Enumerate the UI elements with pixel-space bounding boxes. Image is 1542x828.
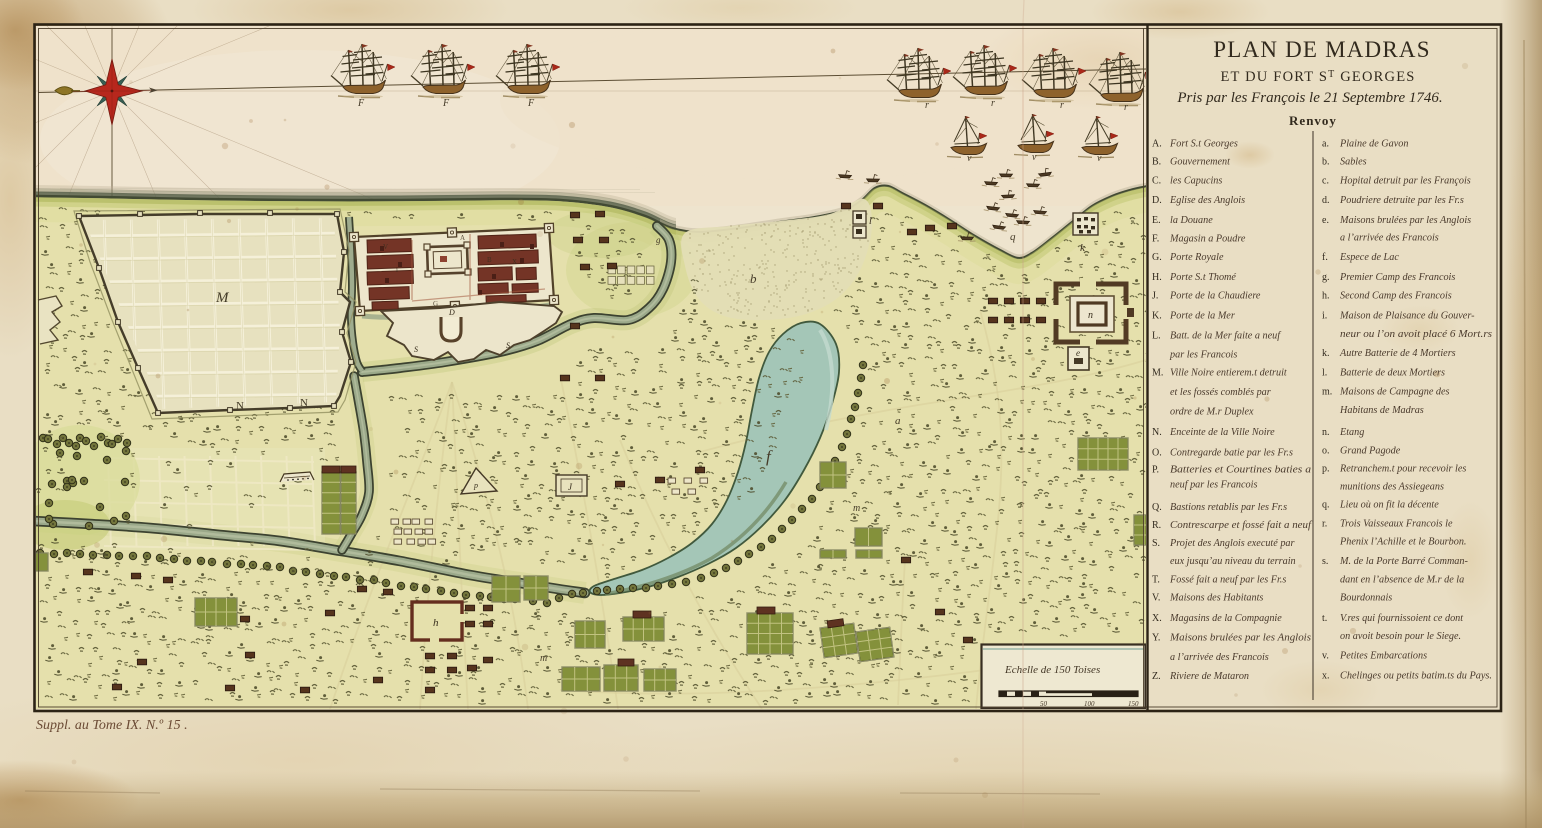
svg-text:a l’arrivée des Francois: a l’arrivée des Francois [1170,652,1269,663]
svg-text:O.: O. [1152,448,1162,459]
svg-text:Porte S.t Thomé: Porte S.t Thomé [1169,272,1236,283]
svg-text:Magasin a Poudre: Magasin a Poudre [1169,234,1246,245]
svg-text:M.: M. [1152,367,1163,378]
svg-text:Pris par les François le 21 Se: Pris par les François le 21 Septembre 17… [1176,90,1442,106]
svg-text:Batterie de deux Mortiers: Batterie de deux Mortiers [1340,367,1445,378]
svg-text:Espece de Lac: Espece de Lac [1339,252,1399,263]
svg-text:Second Camp des Francois: Second Camp des Francois [1340,291,1452,302]
svg-text:c.: c. [1322,175,1329,186]
svg-text:l.: l. [1322,367,1327,378]
svg-text:K.: K. [1152,311,1162,322]
svg-text:n.: n. [1322,427,1330,438]
svg-text:Porte de la Mer: Porte de la Mer [1169,311,1235,322]
svg-text:Porte de la Chaudiere: Porte de la Chaudiere [1169,291,1261,302]
svg-text:Gouvernement: Gouvernement [1170,157,1231,168]
svg-text:G.: G. [1152,252,1162,263]
svg-text:Fossé fait a neuf par les Fr.s: Fossé fait a neuf par les Fr.s [1169,574,1286,585]
svg-text:m.: m. [1322,386,1332,397]
svg-text:Maisons des Habitants: Maisons des Habitants [1169,592,1263,603]
svg-text:o.: o. [1322,446,1330,457]
svg-text:Petites Embarcations: Petites Embarcations [1339,651,1427,662]
svg-text:k.: k. [1322,348,1330,359]
svg-text:Phenix l’Achille et le Bourbon: Phenix l’Achille et le Bourbon. [1339,537,1466,548]
svg-text:Batteries et Courtines baties: Batteries et Courtines baties a [1170,465,1311,476]
svg-text:Hopital detruit par les Franço: Hopital detruit par les François [1339,175,1471,186]
svg-text:X.: X. [1152,613,1162,624]
svg-text:Retranchem.t pour recevoir les: Retranchem.t pour recevoir les [1339,464,1466,475]
svg-text:v.: v. [1322,651,1329,662]
svg-text:neur ou l’on avoit placé 6 Mor: neur ou l’on avoit placé 6 Mort.rs [1340,329,1492,340]
svg-text:a l’arrivée des Francois: a l’arrivée des Francois [1340,233,1439,244]
svg-text:A.: A. [1152,139,1162,150]
svg-text:R.: R. [1152,520,1161,531]
svg-text:Renvoy: Renvoy [1289,113,1337,128]
svg-text:la Douane: la Douane [1170,215,1213,226]
svg-text:Y.: Y. [1152,633,1160,644]
svg-text:par les Francois: par les Francois [1169,350,1237,361]
svg-text:Porte Royale: Porte Royale [1169,252,1224,263]
svg-text:Z.: Z. [1152,671,1161,682]
svg-text:Suppl. au Tome IX. N.º 15 .: Suppl. au Tome IX. N.º 15 . [36,718,188,733]
svg-text:Fort S.t Georges: Fort S.t Georges [1169,139,1238,150]
svg-text:x.: x. [1322,671,1330,682]
svg-text:D.: D. [1152,195,1162,206]
svg-text:t.: t. [1322,613,1327,624]
svg-text:E.: E. [1152,215,1161,226]
svg-text:Autre Batterie de 4 Mortiers: Autre Batterie de 4 Mortiers [1339,348,1456,359]
svg-text:Etang: Etang [1339,427,1364,438]
svg-text:Trois Vaisseaux Francois le: Trois Vaisseaux Francois le [1340,519,1453,530]
svg-text:Maisons brulées par les Angloi: Maisons brulées par les Anglois [1339,215,1471,226]
svg-text:Premier Camp des Francois: Premier Camp des Francois [1339,272,1455,283]
svg-text:Ville Noire entierem.t detruit: Ville Noire entierem.t detruit [1170,367,1288,378]
svg-text:V.: V. [1152,592,1160,603]
svg-text:Projet des Anglois executé par: Projet des Anglois executé par [1169,538,1295,549]
svg-text:f.: f. [1322,252,1328,263]
svg-text:dant en l’absence de M.r de la: dant en l’absence de M.r de la [1340,574,1464,585]
svg-text:Maisons de Campagne des: Maisons de Campagne des [1339,386,1450,397]
svg-text:et les fossés comblés par: et les fossés comblés par [1170,387,1271,398]
svg-text:munitions des Assiegeans: munitions des Assiegeans [1340,482,1444,493]
svg-text:Plaine de Gavon: Plaine de Gavon [1339,139,1408,150]
svg-text:Enceinte de la Ville Noire: Enceinte de la Ville Noire [1169,427,1275,438]
svg-text:r.: r. [1322,519,1327,530]
svg-text:d.: d. [1322,195,1330,206]
svg-text:Bourdonnais: Bourdonnais [1340,593,1392,604]
svg-text:q.: q. [1322,500,1330,511]
svg-text:Contregarde batie par les Fr.s: Contregarde batie par les Fr.s [1170,448,1293,459]
svg-text:Riviere de Mataron: Riviere de Mataron [1169,671,1249,682]
svg-text:les Capucins: les Capucins [1170,175,1222,186]
svg-text:Q.: Q. [1152,502,1162,513]
svg-text:i.: i. [1322,311,1327,322]
svg-text:Sables: Sables [1340,157,1367,168]
svg-text:Lieu où on fit la décente: Lieu où on fit la décente [1339,500,1439,511]
svg-text:Contrescarpe et fossé fait a n: Contrescarpe et fossé fait a neuf [1170,520,1312,531]
svg-text:ET DU FORT ST GEORGES: ET DU FORT ST GEORGES [1220,69,1415,85]
svg-text:Magasins de la Compagnie: Magasins de la Compagnie [1169,613,1282,624]
svg-text:PLAN DE MADRAS: PLAN DE MADRAS [1213,37,1430,62]
svg-text:neuf par les Francois: neuf par les Francois [1170,480,1257,491]
svg-text:Maisons brulées par les Angloi: Maisons brulées par les Anglois [1169,633,1311,644]
svg-text:M. de la Porte Barré Comman-: M. de la Porte Barré Comman- [1339,556,1468,567]
svg-text:e.: e. [1322,215,1329,226]
svg-text:Poudriere detruite par les Fr.: Poudriere detruite par les Fr.s [1339,195,1464,206]
svg-text:h.: h. [1322,291,1330,302]
svg-text:H.: H. [1152,272,1162,283]
svg-text:Habitans de Madras: Habitans de Madras [1339,405,1424,416]
svg-text:S.: S. [1152,538,1160,549]
svg-text:Bastions retablis par les Fr.s: Bastions retablis par les Fr.s [1170,502,1287,513]
svg-text:V.res qui fournissoient ce don: V.res qui fournissoient ce dont [1340,613,1464,624]
svg-text:N.: N. [1152,427,1162,438]
svg-text:C.: C. [1152,175,1161,186]
svg-text:J.: J. [1152,291,1158,302]
svg-text:g.: g. [1322,272,1330,283]
svg-text:b.: b. [1322,157,1330,168]
svg-text:P.: P. [1152,465,1159,476]
svg-text:B.: B. [1152,157,1161,168]
svg-text:on avoit besoin pour le Siege.: on avoit besoin pour le Siege. [1340,631,1461,642]
svg-text:a.: a. [1322,139,1329,150]
svg-text:T.: T. [1152,574,1160,585]
svg-text:eux jusqu’au niveau du terrain: eux jusqu’au niveau du terrain [1170,556,1296,567]
svg-text:L.: L. [1152,330,1161,341]
svg-text:Eglise des Anglois: Eglise des Anglois [1169,195,1245,206]
svg-text:Grand Pagode: Grand Pagode [1340,446,1401,457]
svg-text:F.: F. [1152,234,1159,245]
svg-text:Maison de Plaisance du Gouver-: Maison de Plaisance du Gouver- [1339,311,1475,322]
svg-text:Batt. de la Mer faite a neuf: Batt. de la Mer faite a neuf [1170,330,1281,341]
svg-text:p.: p. [1322,464,1330,475]
svg-text:s.: s. [1322,556,1328,567]
svg-text:ordre de M.r Duplex: ordre de M.r Duplex [1170,407,1254,418]
svg-text:Chelinges ou petits batim.ts d: Chelinges ou petits batim.ts du Pays. [1340,671,1492,682]
